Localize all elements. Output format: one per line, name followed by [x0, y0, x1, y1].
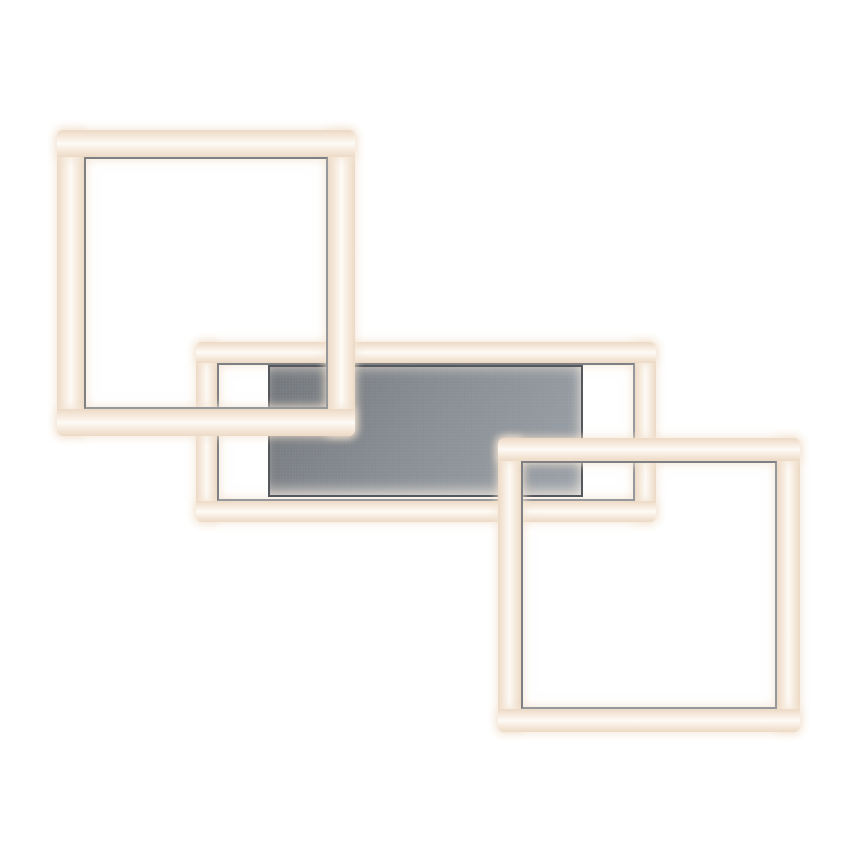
led-frame-top-left — [57, 130, 355, 436]
product-photo — [0, 0, 868, 868]
led-band-top — [57, 130, 355, 157]
led-band-left — [498, 438, 521, 732]
metal-inner-frame — [84, 157, 328, 409]
led-band-left — [57, 130, 84, 436]
led-band-right — [777, 438, 800, 732]
led-band-bottom — [498, 709, 800, 732]
led-band-right — [328, 130, 355, 436]
led-band-top — [498, 438, 800, 461]
metal-inner-frame — [521, 461, 777, 709]
led-band-bottom — [57, 409, 355, 436]
led-frame-bottom-right — [498, 438, 800, 732]
